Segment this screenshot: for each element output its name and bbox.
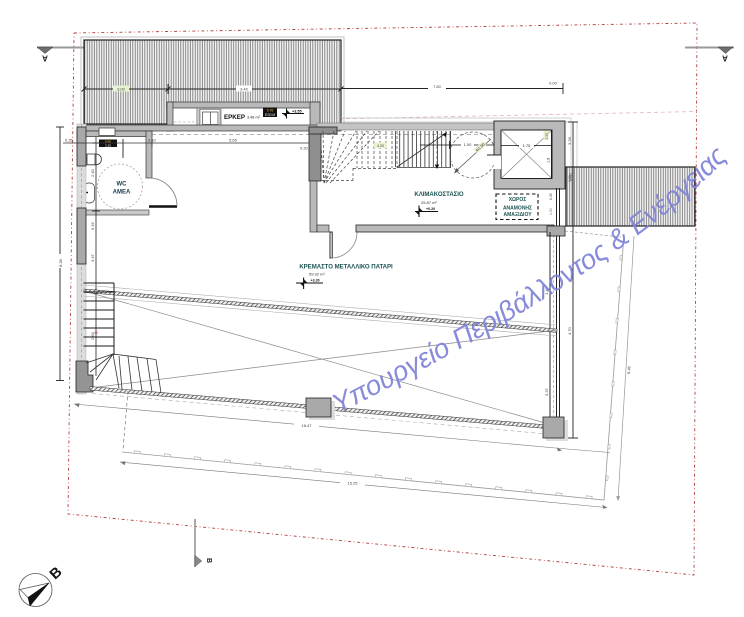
svg-text:0.76: 0.76	[267, 109, 274, 113]
svg-text:8.38: 8.38	[58, 258, 63, 267]
svg-text:WC: WC	[117, 182, 128, 188]
svg-text:15.25: 15.25	[347, 481, 358, 486]
svg-text:6.35: 6.35	[549, 193, 553, 200]
svg-text:18.47: 18.47	[301, 423, 312, 428]
svg-text:ΚΡΕΜΑΣΤΟ ΜΕΤΑΛΛΙΚΟ ΠΑΤΑΡΙ: ΚΡΕΜΑΣΤΟ ΜΕΤΑΛΛΙΚΟ ΠΑΤΑΡΙ	[299, 264, 393, 271]
svg-text:1.50: 1.50	[464, 142, 473, 147]
svg-text:A: A	[42, 54, 48, 63]
svg-text:7.80: 7.80	[433, 84, 442, 89]
svg-text:1.9: 1.9	[547, 158, 551, 163]
svg-text:ΚΛΙΜΑΚΟΣΤΑΣΙΟ: ΚΛΙΜΑΚΟΣΤΑΣΙΟ	[414, 191, 464, 198]
svg-text:4.20: 4.20	[377, 144, 384, 148]
svg-text:ΧΩΡΟΣ: ΧΩΡΟΣ	[509, 197, 527, 203]
svg-text:15: 15	[94, 331, 98, 335]
svg-text:6.46: 6.46	[626, 365, 632, 374]
svg-text:3.37: 3.37	[544, 387, 549, 396]
svg-text:5.65: 5.65	[229, 138, 238, 143]
svg-text:+3.55: +3.55	[292, 110, 302, 114]
svg-text:0.10: 0.10	[148, 138, 157, 143]
svg-text:ΕΞΩ Μ: ΕΞΩ Μ	[265, 113, 275, 117]
svg-text:+3.30: +3.30	[311, 279, 320, 283]
svg-text:59.92 m²: 59.92 m²	[309, 271, 325, 276]
svg-text:0.35: 0.35	[65, 138, 74, 143]
svg-text:6.16: 6.16	[90, 221, 95, 230]
svg-text:ΕΡΚΕΡ: ΕΡΚΕΡ	[224, 114, 245, 121]
svg-text:0.00: 0.00	[549, 81, 558, 86]
svg-text:25.87 m²: 25.87 m²	[421, 200, 437, 205]
svg-text:3.47: 3.47	[90, 253, 95, 262]
svg-text:0.30: 0.30	[545, 133, 549, 140]
svg-text:B: B	[205, 558, 212, 563]
svg-text:1.75: 1.75	[523, 144, 530, 148]
svg-text:ΑΜΑΞΙΔΙΟΥ: ΑΜΑΞΙΔΙΟΥ	[503, 212, 532, 218]
svg-text:3.40: 3.40	[240, 87, 249, 92]
svg-text:2.40: 2.40	[90, 168, 95, 177]
svg-text:ΑΜΕΑ: ΑΜΕΑ	[113, 190, 131, 196]
svg-text:3.00: 3.00	[117, 87, 126, 92]
svg-text:3.48 m²: 3.48 m²	[247, 116, 261, 120]
svg-text:0.60: 0.60	[568, 175, 572, 182]
svg-text:ΑΝΑΜΟΝΗΣ: ΑΝΑΜΟΝΗΣ	[503, 206, 532, 212]
svg-text:4.70: 4.70	[567, 326, 572, 335]
svg-text:1.00: 1.00	[549, 208, 553, 215]
svg-text:A: A	[722, 54, 728, 63]
svg-text:0.20: 0.20	[300, 146, 309, 151]
svg-text:+0.20: +0.20	[426, 207, 435, 211]
svg-text:2.20: 2.20	[105, 144, 111, 148]
svg-text:3.28: 3.28	[567, 136, 572, 145]
